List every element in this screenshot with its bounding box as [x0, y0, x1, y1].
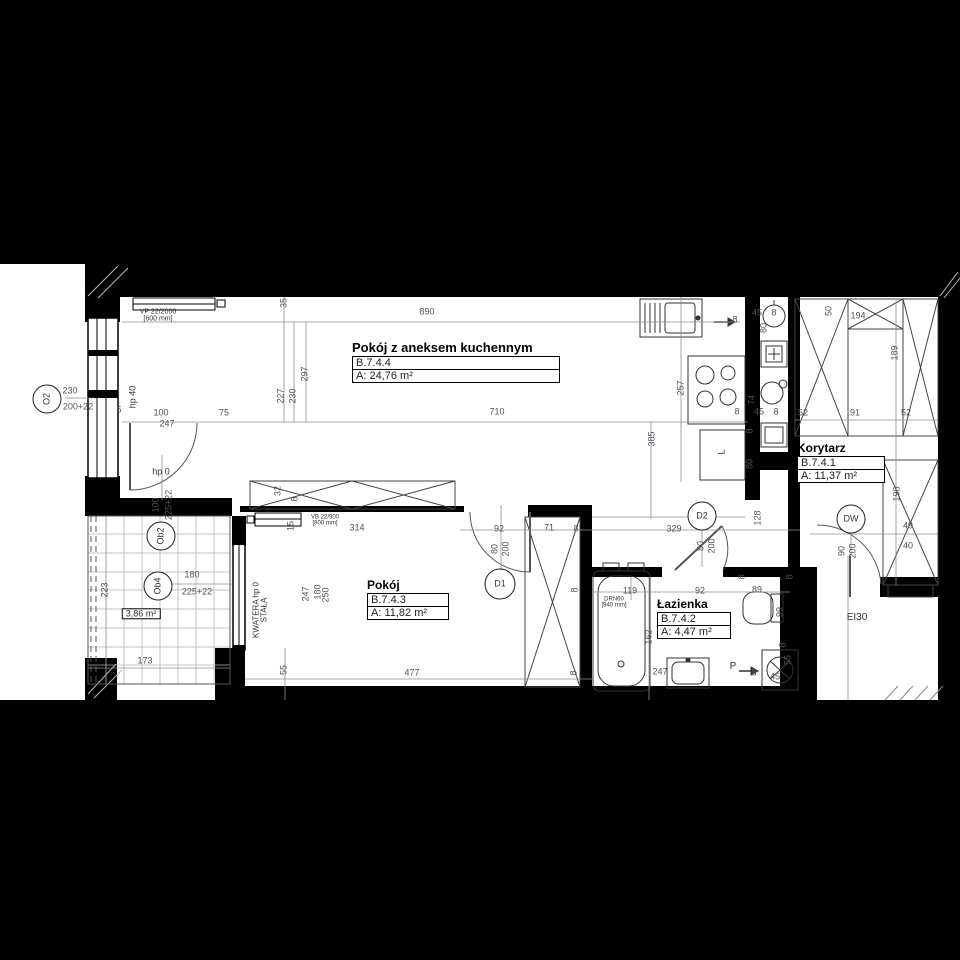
room-name: Pokój z aneksem kuchennym — [352, 340, 560, 355]
dimension-label: 100 — [153, 408, 168, 417]
dimension-label: 194 — [850, 311, 865, 320]
dimension-label: 227 — [276, 388, 285, 403]
dimension-label: 90 — [837, 546, 846, 556]
dimension-label: 75 — [219, 408, 229, 417]
dimension-label: 477 — [404, 668, 419, 677]
note-label: P — [730, 662, 737, 673]
dimension-label: 162 — [644, 629, 653, 644]
note-label: hp 0 — [152, 467, 170, 476]
dimension-label: 250 — [321, 587, 330, 602]
dimension-label: 92 — [494, 524, 504, 533]
room-label-pokoj: Pokój B.7.4.3 A: 11,82 m² — [367, 578, 449, 620]
dimension-label: 100 — [151, 497, 160, 512]
dimension-label: 32 — [273, 486, 282, 496]
room-id: B.7.4.3 — [368, 594, 448, 607]
room-label-korytarz: Korytarz B.7.4.1 A: 11,37 m² — [797, 441, 885, 483]
dimension-label: 8 — [569, 670, 578, 675]
dimension-label: 8 — [290, 496, 299, 501]
dimension-label: 8 — [751, 668, 756, 677]
note-label: EI30 — [847, 613, 868, 624]
dimension-label: 200 — [501, 541, 510, 556]
dimension-label: 8 — [573, 524, 578, 533]
room-id: B.7.4.2 — [658, 613, 730, 626]
dimension-label: 196 — [892, 486, 901, 501]
dimension-label: 8 — [778, 642, 787, 647]
note-label: VP 22/2000 [600 mm] — [140, 309, 176, 324]
dimension-label: 5 — [116, 405, 121, 414]
dimension-label: 80 — [490, 544, 499, 554]
note-label: KWATERA hp 0 STAŁA — [253, 582, 270, 638]
dimension-label: 49 — [903, 521, 913, 530]
dimension-label: 35 — [279, 298, 288, 308]
dimension-label: 15 — [286, 521, 295, 531]
room-id: B.7.4.4 — [353, 357, 559, 370]
marker-circle: Ob4 — [144, 572, 173, 601]
room-area: A: 4,47 m² — [658, 626, 730, 638]
dimension-label: 45 — [752, 308, 762, 317]
dimension-label: 8 — [771, 308, 776, 317]
room-area: A: 11,82 m² — [368, 607, 448, 619]
room-name: Pokój — [367, 578, 449, 592]
dimension-label: 74 — [747, 395, 756, 405]
dimension-label: 80 — [745, 459, 754, 469]
floor-plan-page: 8903529723022771010075247230200+22538525… — [0, 0, 960, 960]
dimension-label: 247 — [652, 667, 667, 676]
room-label-lazienka: Łazienka B.7.4.2 A: 4,47 m² — [657, 597, 731, 639]
dimension-label: 200+22 — [63, 402, 93, 411]
dimension-label: 50 — [824, 306, 833, 316]
dimension-label: 200 — [707, 538, 716, 553]
room-info-box: B.7.4.2 A: 4,47 m² — [657, 612, 731, 639]
dimension-label: 890 — [419, 307, 434, 316]
marker-circle: O2 — [33, 385, 62, 414]
room-area: A: 11,37 m² — [798, 470, 884, 482]
dimension-label: 8 — [734, 407, 739, 416]
dimension-label: 45 — [754, 407, 764, 416]
dimension-label: 71 — [544, 523, 554, 532]
dimension-label: 52 — [798, 408, 808, 417]
dimension-label: 99 — [775, 607, 784, 617]
note-label: VB 22/900 [800 mm] — [311, 515, 339, 528]
room-area: A: 24,76 m² — [353, 370, 559, 382]
dimension-label: 225+22 — [182, 587, 212, 596]
note-label: L — [717, 449, 726, 454]
dimension-label: 8 — [737, 574, 746, 579]
dimension-label: 119 — [623, 586, 637, 595]
dimension-label: 225+22 — [164, 490, 173, 520]
room-info-box: B.7.4.4 A: 24,76 m² — [352, 356, 560, 383]
dimension-label: 52 — [901, 408, 911, 417]
dimension-label: 45 — [770, 672, 780, 681]
dimension-label: 180 — [184, 570, 199, 579]
dimension-label: 200 — [848, 543, 857, 558]
marker-circle: Ob2 — [147, 522, 176, 551]
dimension-label: 247 — [159, 419, 174, 428]
dimension-label: 80 — [696, 541, 705, 551]
dimension-label: 189 — [890, 345, 899, 360]
dimension-label: 173 — [137, 656, 152, 665]
dimension-label: 257 — [676, 380, 685, 395]
marker-circle: D2 — [688, 502, 717, 531]
dimension-label: 329 — [666, 524, 681, 533]
dimension-label: 385 — [647, 431, 656, 446]
room-name: Łazienka — [657, 597, 731, 611]
dimension-label: 710 — [489, 407, 504, 416]
dimension-label: 8 — [785, 574, 794, 579]
dimension-label: 314 — [349, 523, 364, 532]
room-info-box: B.7.4.1 A: 11,37 m² — [797, 456, 885, 483]
dimension-label: 91 — [850, 408, 860, 417]
dimension-label: 55 — [279, 665, 288, 675]
dimension-label: 230 — [288, 388, 297, 403]
room-name: Korytarz — [797, 441, 885, 455]
dimension-label: 92 — [695, 586, 705, 595]
marker-circle: DW — [837, 505, 866, 534]
dimension-label: 80 — [759, 323, 768, 333]
note-label: hp 40 — [128, 386, 137, 409]
dimension-label: 55 — [783, 655, 792, 665]
dimension-label: 8 — [732, 315, 737, 324]
dimension-label: 223 — [100, 582, 109, 597]
room-label-kitchen: Pokój z aneksem kuchennym B.7.4.4 A: 24,… — [352, 340, 560, 383]
dimension-label: 8 — [570, 587, 579, 592]
note-label: 3,86 m² — [122, 608, 161, 619]
room-info-box: B.7.4.3 A: 11,82 m² — [367, 593, 449, 620]
dimension-label: 128 — [753, 510, 762, 525]
dimension-label: 297 — [300, 366, 309, 381]
marker-circle: D1 — [485, 569, 516, 600]
dimension-label: 8 — [773, 407, 778, 416]
dimension-label: 40 — [903, 541, 913, 550]
dimension-label: 230 — [62, 386, 77, 395]
dimension-label: 247 — [301, 586, 310, 601]
dimension-label: 89 — [752, 585, 762, 594]
note-label: DRN60 [940 mm] — [601, 597, 626, 610]
room-id: B.7.4.1 — [798, 457, 884, 470]
dimension-label: 8 — [745, 428, 754, 433]
